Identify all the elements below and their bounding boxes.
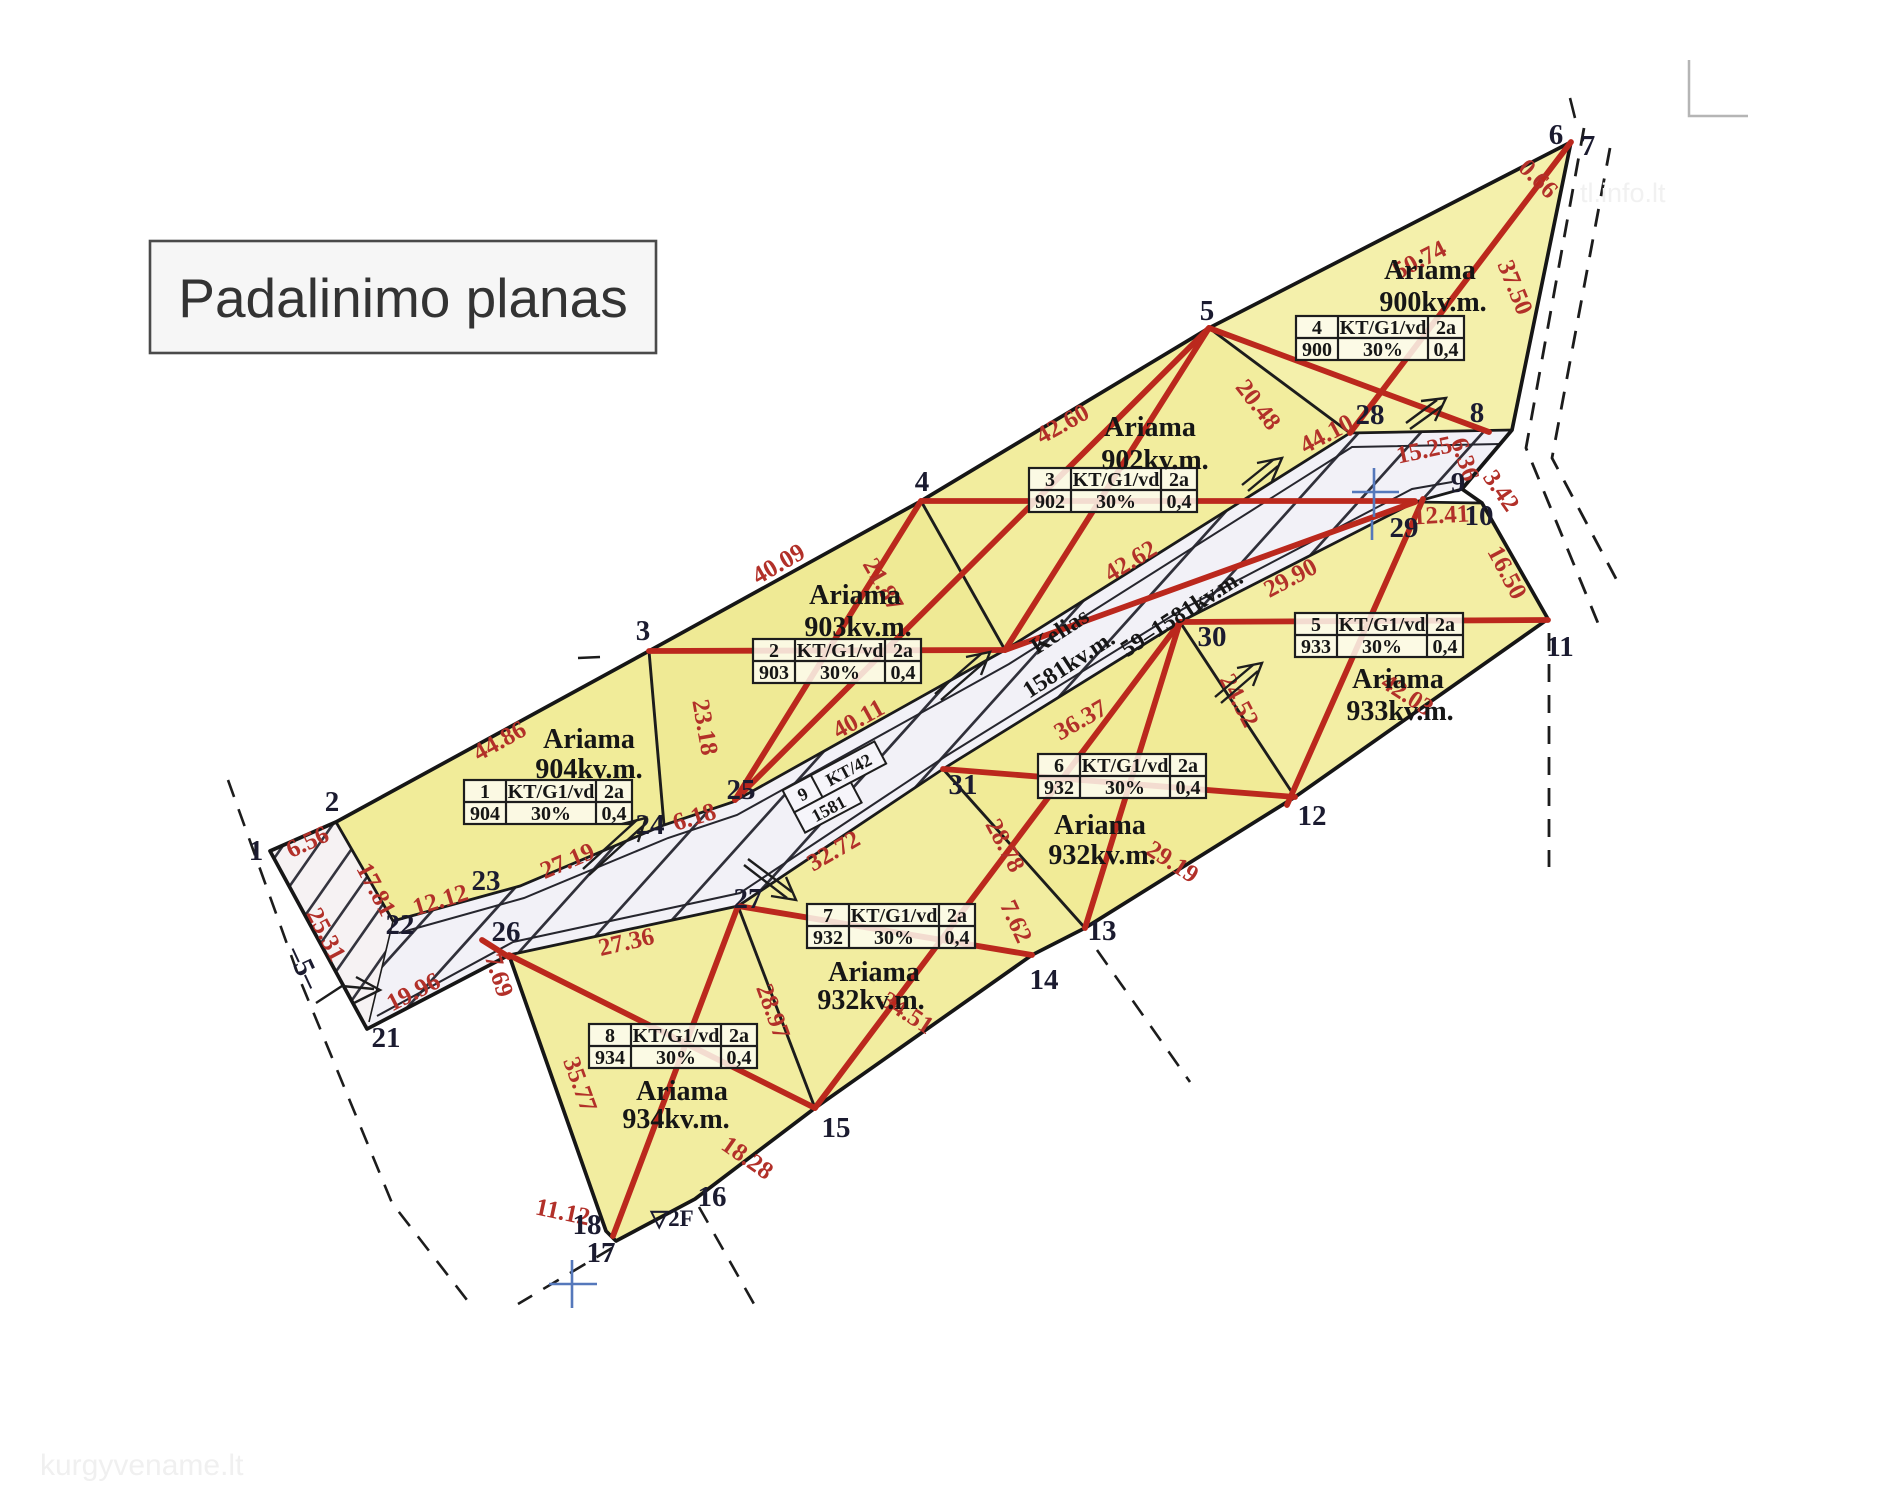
- svg-text:902: 902: [1035, 491, 1065, 513]
- svg-text:26: 26: [492, 916, 521, 948]
- svg-text:900kv.m.: 900kv.m.: [1379, 287, 1486, 318]
- svg-text:Ariama: Ariama: [828, 957, 920, 988]
- svg-text:17: 17: [587, 1237, 616, 1269]
- svg-text:4: 4: [915, 466, 930, 498]
- svg-text:Ariama: Ariama: [636, 1076, 728, 1107]
- svg-text:3: 3: [1045, 469, 1055, 491]
- svg-text:31: 31: [949, 769, 978, 801]
- svg-text:2a: 2a: [1178, 755, 1198, 777]
- svg-text:▽2F: ▽2F: [649, 1206, 693, 1231]
- svg-text:18: 18: [573, 1209, 602, 1241]
- svg-text:25: 25: [727, 774, 756, 806]
- svg-text:0,4: 0,4: [891, 662, 916, 684]
- svg-text:Ariama: Ariama: [1054, 810, 1146, 841]
- svg-text:8: 8: [1470, 397, 1485, 429]
- svg-text:6: 6: [1549, 119, 1564, 151]
- svg-text:27: 27: [734, 883, 763, 915]
- svg-text:30%: 30%: [820, 662, 860, 684]
- svg-text:932: 932: [813, 927, 843, 949]
- svg-text:7: 7: [823, 905, 833, 927]
- svg-text:29: 29: [1390, 512, 1419, 544]
- svg-text:8: 8: [605, 1025, 615, 1047]
- svg-text:6: 6: [1054, 755, 1064, 777]
- svg-text:16: 16: [698, 1181, 727, 1213]
- svg-text:5: 5: [1200, 295, 1215, 327]
- svg-text:KT/G1/vd: KT/G1/vd: [1340, 317, 1427, 339]
- svg-text:0,4: 0,4: [945, 927, 970, 949]
- svg-text:1: 1: [480, 781, 490, 803]
- svg-text:12.41: 12.41: [1412, 501, 1470, 531]
- svg-text:KT/G1/vd: KT/G1/vd: [1339, 614, 1426, 636]
- svg-text:0,4: 0,4: [602, 803, 627, 825]
- svg-text:30%: 30%: [874, 927, 914, 949]
- svg-text:30%: 30%: [1362, 636, 1402, 658]
- svg-text:KT/G1/vd: KT/G1/vd: [633, 1025, 720, 1047]
- svg-text:30%: 30%: [656, 1047, 696, 1069]
- svg-text:904: 904: [470, 803, 500, 825]
- svg-text:932kv.m.: 932kv.m.: [1048, 840, 1155, 871]
- svg-text:10: 10: [1465, 500, 1494, 532]
- svg-text:2a: 2a: [1436, 317, 1456, 339]
- svg-text:tl.info.lt: tl.info.lt: [1580, 178, 1666, 208]
- svg-text:30%: 30%: [531, 803, 571, 825]
- svg-text:13: 13: [1088, 915, 1117, 947]
- svg-text:2a: 2a: [947, 905, 967, 927]
- svg-text:Ariama: Ariama: [1352, 664, 1444, 695]
- svg-text:Ariama: Ariama: [1104, 412, 1196, 443]
- svg-text:2: 2: [325, 786, 340, 818]
- svg-text:0,4: 0,4: [1167, 491, 1192, 513]
- svg-text:5: 5: [1311, 614, 1321, 636]
- svg-text:0,4: 0,4: [1176, 777, 1201, 799]
- svg-text:9: 9: [1451, 467, 1466, 499]
- svg-text:902kv.m.: 902kv.m.: [1101, 445, 1208, 476]
- svg-text:12: 12: [1298, 800, 1327, 832]
- svg-text:KT/G1/vd: KT/G1/vd: [797, 640, 884, 662]
- svg-text:932: 932: [1044, 777, 1074, 799]
- svg-text:30%: 30%: [1105, 777, 1145, 799]
- svg-text:Ariama: Ariama: [1384, 255, 1476, 286]
- svg-text:903kv.m.: 903kv.m.: [804, 612, 911, 643]
- svg-text:Padalinimo planas: Padalinimo planas: [178, 267, 627, 329]
- svg-text:1: 1: [249, 835, 264, 867]
- svg-text:933: 933: [1301, 636, 1331, 658]
- svg-text:903: 903: [759, 662, 789, 684]
- svg-text:934: 934: [595, 1047, 625, 1069]
- svg-text:2a: 2a: [893, 640, 913, 662]
- svg-text:0,4: 0,4: [727, 1047, 752, 1069]
- svg-text:21: 21: [372, 1022, 401, 1054]
- svg-text:933kv.m.: 933kv.m.: [1346, 696, 1453, 727]
- svg-text:KT/G1/vd: KT/G1/vd: [851, 905, 938, 927]
- svg-text:Ariama: Ariama: [809, 580, 901, 611]
- svg-text:28: 28: [1356, 399, 1385, 431]
- svg-text:23: 23: [472, 865, 501, 897]
- svg-text:2a: 2a: [729, 1025, 749, 1047]
- svg-text:kurgyvename.lt: kurgyvename.lt: [40, 1449, 244, 1482]
- svg-text:22: 22: [386, 909, 415, 941]
- svg-text:904kv.m.: 904kv.m.: [535, 754, 642, 785]
- svg-text:30%: 30%: [1096, 491, 1136, 513]
- svg-text:932kv.m.: 932kv.m.: [817, 985, 924, 1016]
- svg-text:7: 7: [1581, 130, 1596, 162]
- svg-text:30%: 30%: [1363, 339, 1403, 361]
- svg-text:Ariama: Ariama: [543, 724, 635, 755]
- svg-text:2: 2: [769, 640, 779, 662]
- svg-text:3: 3: [636, 615, 651, 647]
- svg-text:2a: 2a: [1435, 614, 1455, 636]
- svg-text:30: 30: [1198, 621, 1227, 653]
- svg-text:0,4: 0,4: [1433, 636, 1458, 658]
- svg-text:14: 14: [1030, 964, 1059, 996]
- svg-text:15: 15: [822, 1112, 851, 1144]
- svg-text:11: 11: [1546, 631, 1573, 663]
- svg-text:934kv.m.: 934kv.m.: [622, 1104, 729, 1135]
- svg-text:900: 900: [1302, 339, 1332, 361]
- svg-text:4: 4: [1312, 317, 1322, 339]
- svg-text:0,4: 0,4: [1434, 339, 1459, 361]
- svg-text:KT/G1/vd: KT/G1/vd: [1082, 755, 1169, 777]
